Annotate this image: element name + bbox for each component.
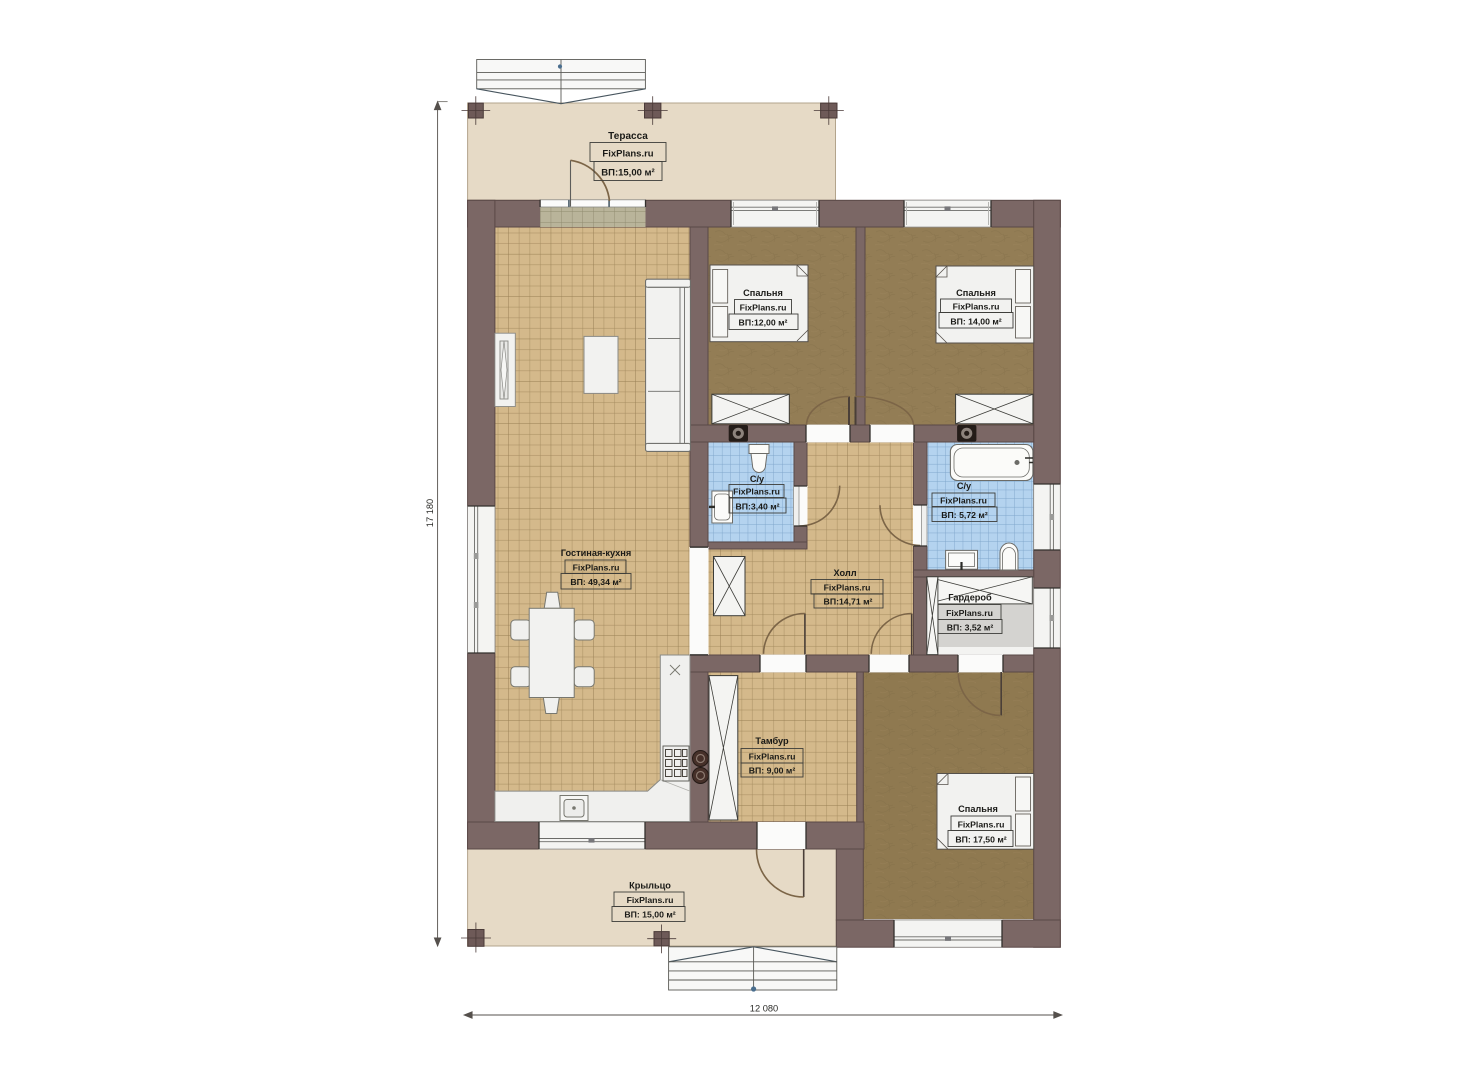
svg-text:ВП: 9,00 м²: ВП: 9,00 м² [749,766,796,776]
svg-text:ВП: 17,50 м²: ВП: 17,50 м² [955,835,1006,845]
svg-text:FixPlans.ru: FixPlans.ru [946,608,993,618]
svg-text:FixPlans.ru: FixPlans.ru [824,583,871,593]
svg-text:FixPlans.ru: FixPlans.ru [733,487,780,497]
svg-text:ВП:12,00 м²: ВП:12,00 м² [739,318,788,328]
svg-text:ВП:15,00 м²: ВП:15,00 м² [601,168,654,179]
svg-text:ВП: 49,34 м²: ВП: 49,34 м² [570,577,621,587]
svg-text:С/у: С/у [750,474,765,484]
svg-text:Спальня: Спальня [958,804,998,814]
svg-text:ВП:14,71 м²: ВП:14,71 м² [824,597,873,607]
svg-text:FixPlans.ru: FixPlans.ru [958,820,1005,830]
svg-text:Терасса: Терасса [608,131,648,142]
svg-text:FixPlans.ru: FixPlans.ru [627,895,674,905]
svg-text:Спальня: Спальня [743,288,783,298]
svg-text:ВП:3,40 м²: ВП:3,40 м² [735,502,779,512]
svg-text:12 080: 12 080 [750,1004,778,1014]
svg-text:Гардероб: Гардероб [948,593,992,603]
svg-text:ВП: 5,72 м²: ВП: 5,72 м² [941,510,988,520]
svg-text:ВП: 15,00 м²: ВП: 15,00 м² [624,910,675,920]
svg-text:FixPlans.ru: FixPlans.ru [740,303,787,313]
svg-text:FixPlans.ru: FixPlans.ru [953,302,1000,312]
svg-text:Крыльцо: Крыльцо [629,881,671,891]
svg-text:С/у: С/у [957,481,972,491]
svg-text:Тамбур: Тамбур [755,736,789,746]
svg-text:ВП: 3,52 м²: ВП: 3,52 м² [947,623,994,633]
svg-text:Холл: Холл [833,568,856,578]
svg-text:Спальня: Спальня [956,288,996,298]
svg-text:Гостиная-кухня: Гостиная-кухня [561,548,631,558]
svg-text:ВП: 14,00 м²: ВП: 14,00 м² [950,317,1001,327]
svg-text:FixPlans.ru: FixPlans.ru [602,149,653,160]
svg-text:FixPlans.ru: FixPlans.ru [749,752,796,762]
svg-text:FixPlans.ru: FixPlans.ru [940,496,987,506]
svg-text:FixPlans.ru: FixPlans.ru [573,563,620,573]
svg-text:17 180: 17 180 [425,499,435,527]
